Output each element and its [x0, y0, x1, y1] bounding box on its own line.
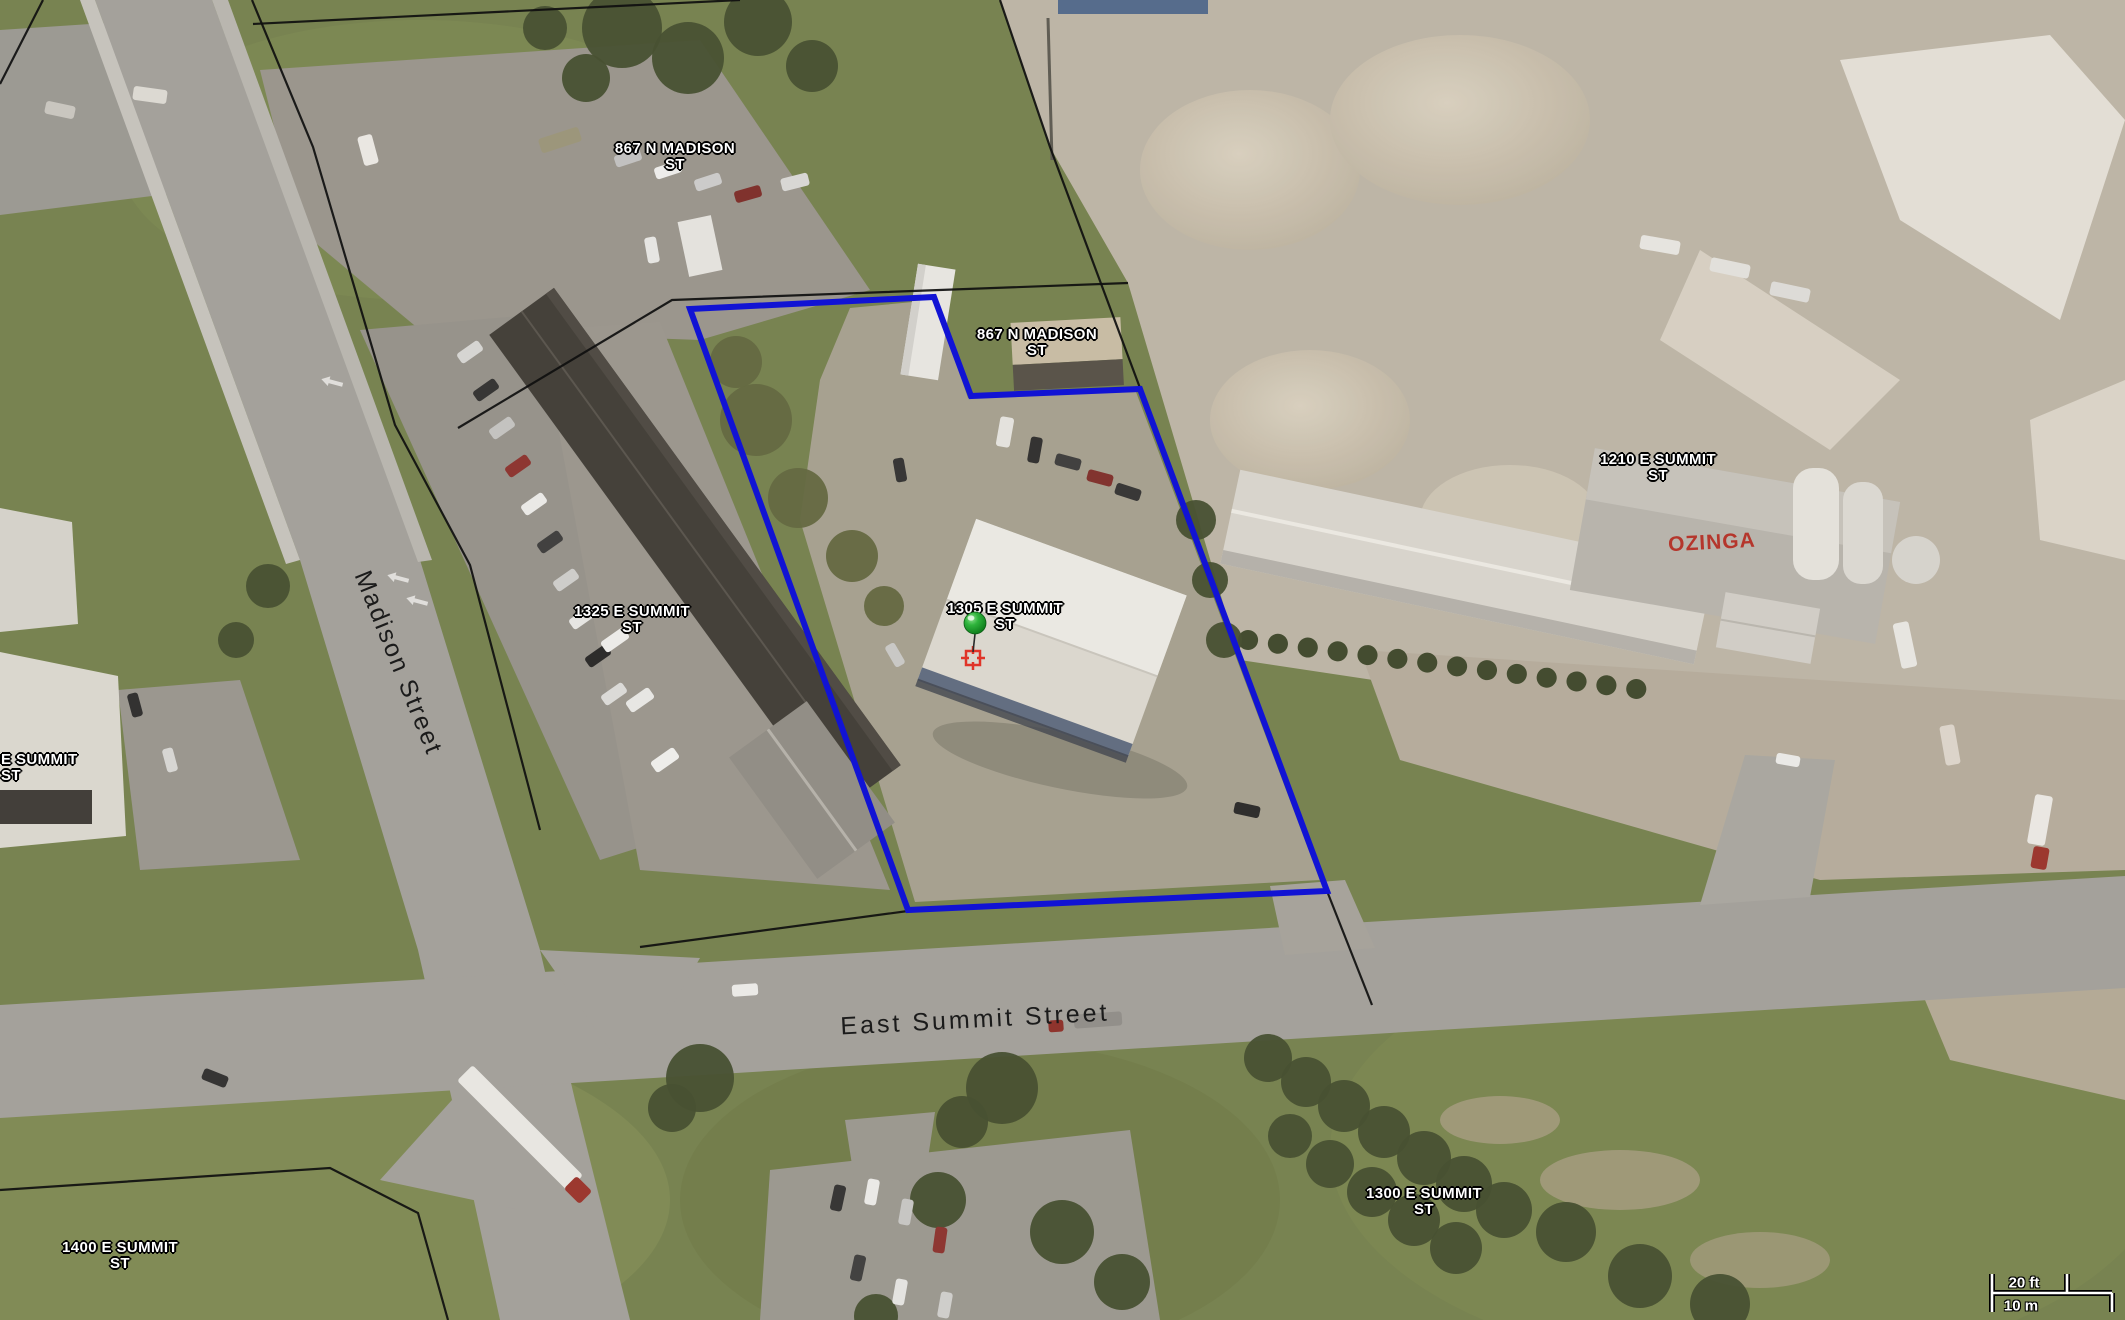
scale-metric-label: 10 m [2004, 1298, 2038, 1315]
scale-imperial-label: 20 ft [2009, 1275, 2040, 1292]
selected-location-marker[interactable] [961, 612, 986, 670]
overlay-layer [0, 0, 2125, 1320]
green-pin-icon [964, 612, 986, 634]
aerial-map[interactable]: Madison Street East Summit Street OZINGA… [0, 0, 2125, 1320]
